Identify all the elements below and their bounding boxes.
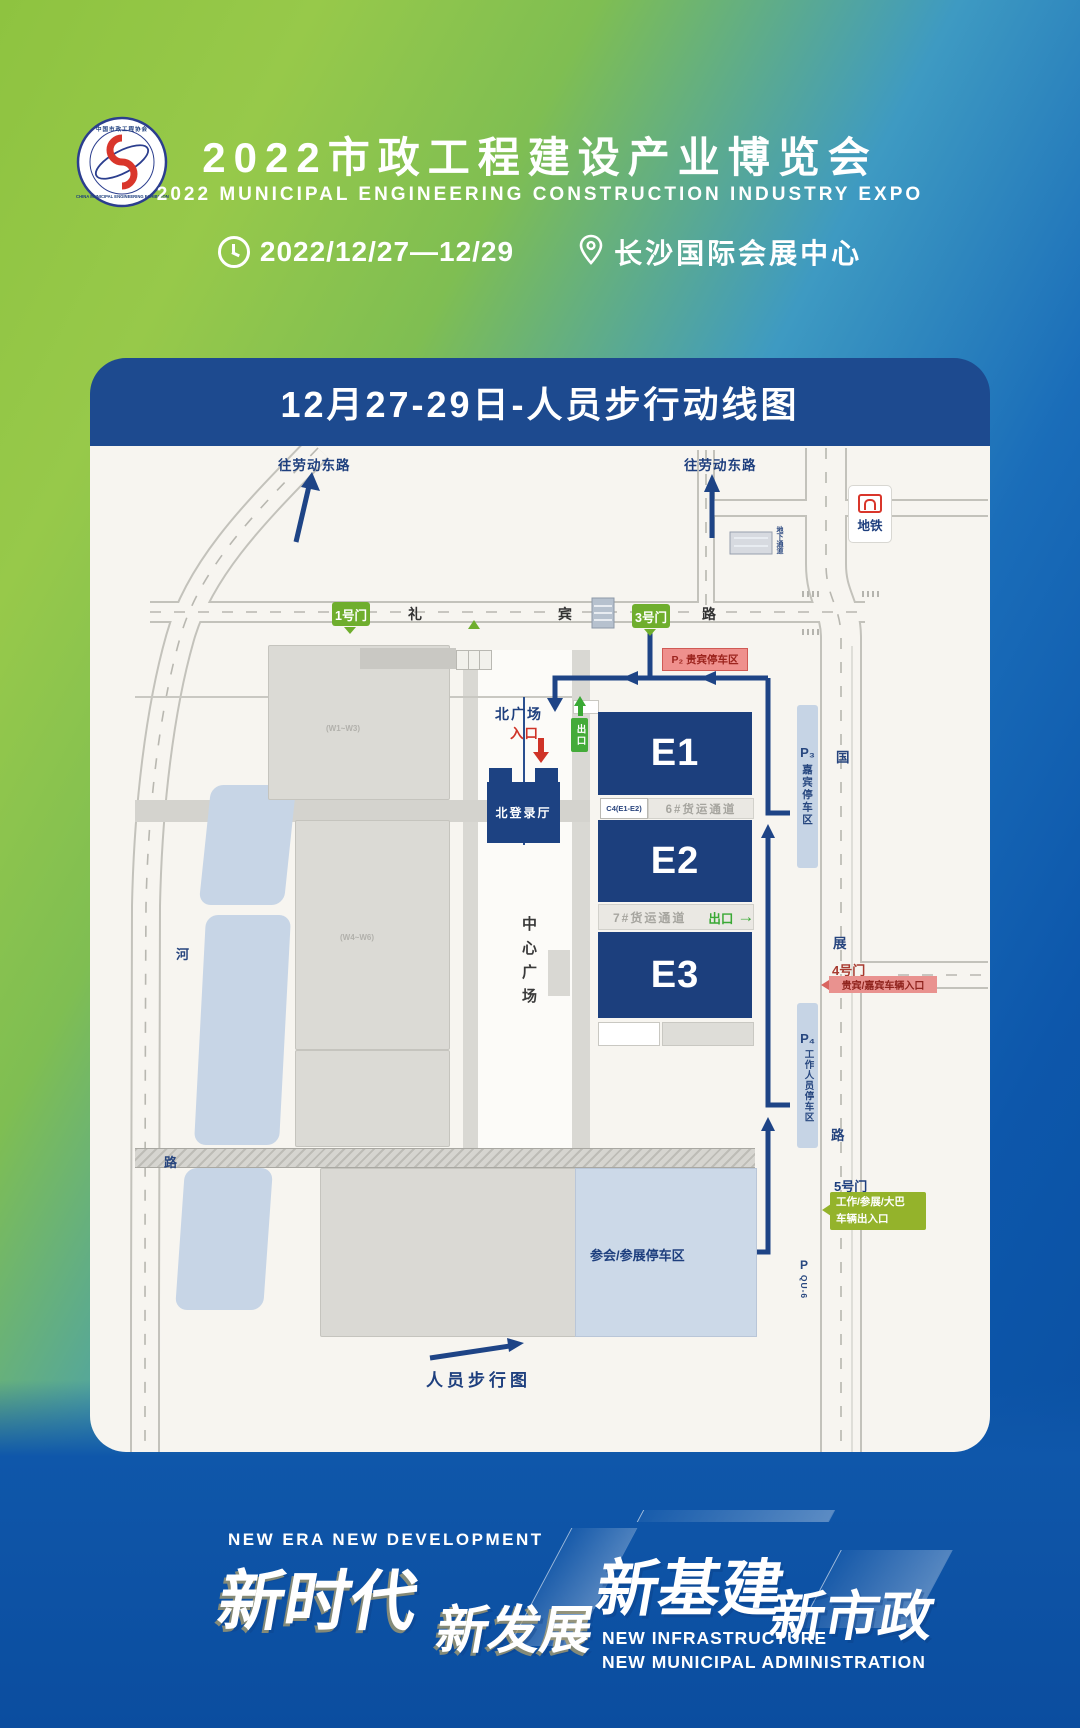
north-login-hall-label: 北登录厅	[495, 804, 551, 821]
gate-5-line2: 车辆出入口	[836, 1211, 926, 1228]
entry-arrow-head	[533, 752, 549, 763]
underpass-label: 地下通道	[774, 526, 784, 564]
metro-icon	[858, 494, 882, 513]
walking-legend-label: 人员步行图	[426, 1366, 531, 1391]
footer-tagline-en: NEW ERA NEW DEVELOPMENT	[228, 1530, 544, 1550]
exit-arrow-head	[574, 696, 586, 706]
p3-name: 嘉宾停车区	[800, 764, 815, 827]
map-title-bar: 12月27-29日-人员步行动线图	[90, 358, 990, 446]
gate-4-entry-label: 贵宾/嘉宾车辆入口	[829, 976, 937, 993]
bus-shelter-booths	[456, 650, 492, 670]
north-square-label: 北广场	[495, 704, 543, 724]
west-hall-lower-label: (W4~W6)	[340, 933, 374, 942]
bus-shelter	[360, 648, 456, 669]
guozhan-road-char-1: 国	[836, 746, 850, 766]
hall-e2-label: E2	[651, 840, 699, 883]
p4-parking-strip: P₄ 工作人员停车区	[797, 1003, 818, 1148]
guozhan-road-char-3: 路	[831, 1124, 845, 1144]
waterside-area-upper	[199, 785, 297, 905]
libin-road-char-2: 宾	[558, 604, 572, 624]
to-laodong-right-label: 往劳动东路	[684, 454, 757, 474]
hall-e1-label: E1	[651, 732, 699, 775]
e3-south-box-gray	[662, 1022, 754, 1046]
map-card: 12月27-29日-人员步行动线图	[90, 358, 990, 1452]
he-road-char-1: 河	[176, 944, 189, 963]
glass-slash-3	[637, 1510, 835, 1522]
date-venue-row: 2022/12/27—12/29 长沙国际会展中心	[0, 232, 1080, 272]
gate-3: 3号门	[632, 604, 670, 628]
hall-e3: E3	[598, 932, 752, 1018]
hall-e3-label: E3	[651, 954, 699, 997]
p3-label: P₃	[800, 745, 815, 760]
gate-4-entry-text: 贵宾/嘉宾车辆入口	[842, 977, 925, 992]
freight6-corridor: 6#货运通道	[648, 798, 754, 819]
waterside-area-lower	[175, 1168, 273, 1310]
west-hall-upper-label: (W1~W3)	[326, 724, 360, 733]
location-pin-icon	[578, 234, 604, 271]
gate-3-pointer	[644, 629, 656, 636]
pqu6-code: QU-6	[799, 1275, 809, 1299]
entry-label: 入口	[510, 722, 539, 742]
libin-road-char-3: 路	[702, 604, 716, 624]
map-title: 12月27-29日-人员步行动线图	[280, 376, 799, 428]
p3-parking-strip: P₃ 嘉宾停车区	[797, 705, 818, 868]
west-annex	[295, 1050, 450, 1147]
p2-parking-text: P₂ 贵宾停车区	[671, 652, 738, 667]
metro-station: 地铁	[848, 485, 892, 543]
exit-badge: 出口	[571, 718, 588, 752]
east-exit-label: 出口	[708, 908, 733, 927]
e3-south-box-white	[598, 1022, 660, 1046]
pqu6-parking-label: P QU-6	[796, 1258, 812, 1292]
freight7-corridor: 7#货运通道 出口 →	[598, 904, 754, 930]
crossing-pointer	[468, 620, 480, 629]
pqu6-p: P	[800, 1258, 808, 1272]
libin-road-char-1: 礼	[408, 604, 422, 624]
gate-4-pointer	[821, 980, 829, 990]
south-gray-lot	[320, 1168, 577, 1337]
waterside-area-middle	[194, 915, 291, 1145]
header: 中国市政工程协会 CHINA MUNICIPAL ENGINEERING EXH…	[0, 0, 1080, 330]
clock-icon	[218, 236, 250, 268]
p4-name: 工作人员停车区	[801, 1049, 815, 1123]
gate-1-label: 1号门	[335, 605, 367, 624]
north-login-hall: 北登录厅	[487, 768, 560, 843]
exit-badge-label: 出口	[573, 724, 587, 747]
gate-3-label: 3号门	[635, 607, 667, 626]
footer-sub-1: NEW INFRASTRUCTURE	[602, 1628, 827, 1649]
hall-e1: E1	[598, 712, 752, 795]
footer-banner: NEW ERA NEW DEVELOPMENT 新时代 新发展 新基建 新市政 …	[0, 1450, 1080, 1728]
he-road-char-2: 路	[164, 1152, 177, 1171]
event-subtitle: 2022 MUNICIPAL ENGINEERING CONSTRUCTION …	[0, 184, 1080, 206]
e3-west-box	[548, 950, 570, 996]
freight6-label: 6#货运通道	[666, 801, 737, 817]
to-laodong-left-label: 往劳动东路	[278, 454, 351, 474]
event-title: 2022市政工程建设产业博览会	[0, 124, 1080, 185]
east-exit-arrow: →	[737, 907, 754, 927]
event-date: 2022/12/27—12/29	[260, 236, 514, 268]
guozhan-road-char-2: 展	[833, 932, 847, 952]
gate-1: 1号门	[332, 602, 370, 626]
p4-label: P₄	[800, 1031, 815, 1046]
footer-big-3: 新基建	[590, 1538, 792, 1628]
map-canvas: (W1~W3) (W4~W6) 参会/参展停车区 中心广场 北登录厅 E1	[90, 446, 990, 1452]
south-fence-band	[135, 1148, 755, 1168]
hall-e2: E2	[598, 820, 752, 902]
entry-arrow	[538, 738, 544, 752]
footer-big-2: 新发展	[431, 1588, 600, 1663]
freight7-label: 7#货运通道	[613, 909, 686, 926]
attendee-parking-label: 参会/参展停车区	[590, 1245, 685, 1264]
c4-corridor-box: C4(E1-E2)	[600, 798, 648, 819]
center-plaza-label: 中心广场	[518, 916, 539, 1046]
gate-5-entry-label: 工作/参展/大巴 车辆出入口	[830, 1192, 926, 1230]
c4-corridor-label: C4(E1-E2)	[606, 804, 641, 813]
event-venue: 长沙国际会展中心	[614, 232, 862, 272]
exit-arrow	[578, 706, 583, 716]
footer-sub-2: NEW MUNICIPAL ADMINISTRATION	[602, 1652, 926, 1673]
footer-big-1: 新时代	[212, 1548, 427, 1644]
p2-parking-label: P₂ 贵宾停车区	[662, 648, 748, 671]
expo-poster: 中国市政工程协会 CHINA MUNICIPAL ENGINEERING EXH…	[0, 0, 1080, 1728]
attendee-parking-area: 参会/参展停车区	[575, 1168, 757, 1337]
metro-label: 地铁	[857, 515, 882, 534]
gate-5-line1: 工作/参展/大巴	[836, 1194, 926, 1211]
gate-1-pointer	[344, 627, 356, 634]
